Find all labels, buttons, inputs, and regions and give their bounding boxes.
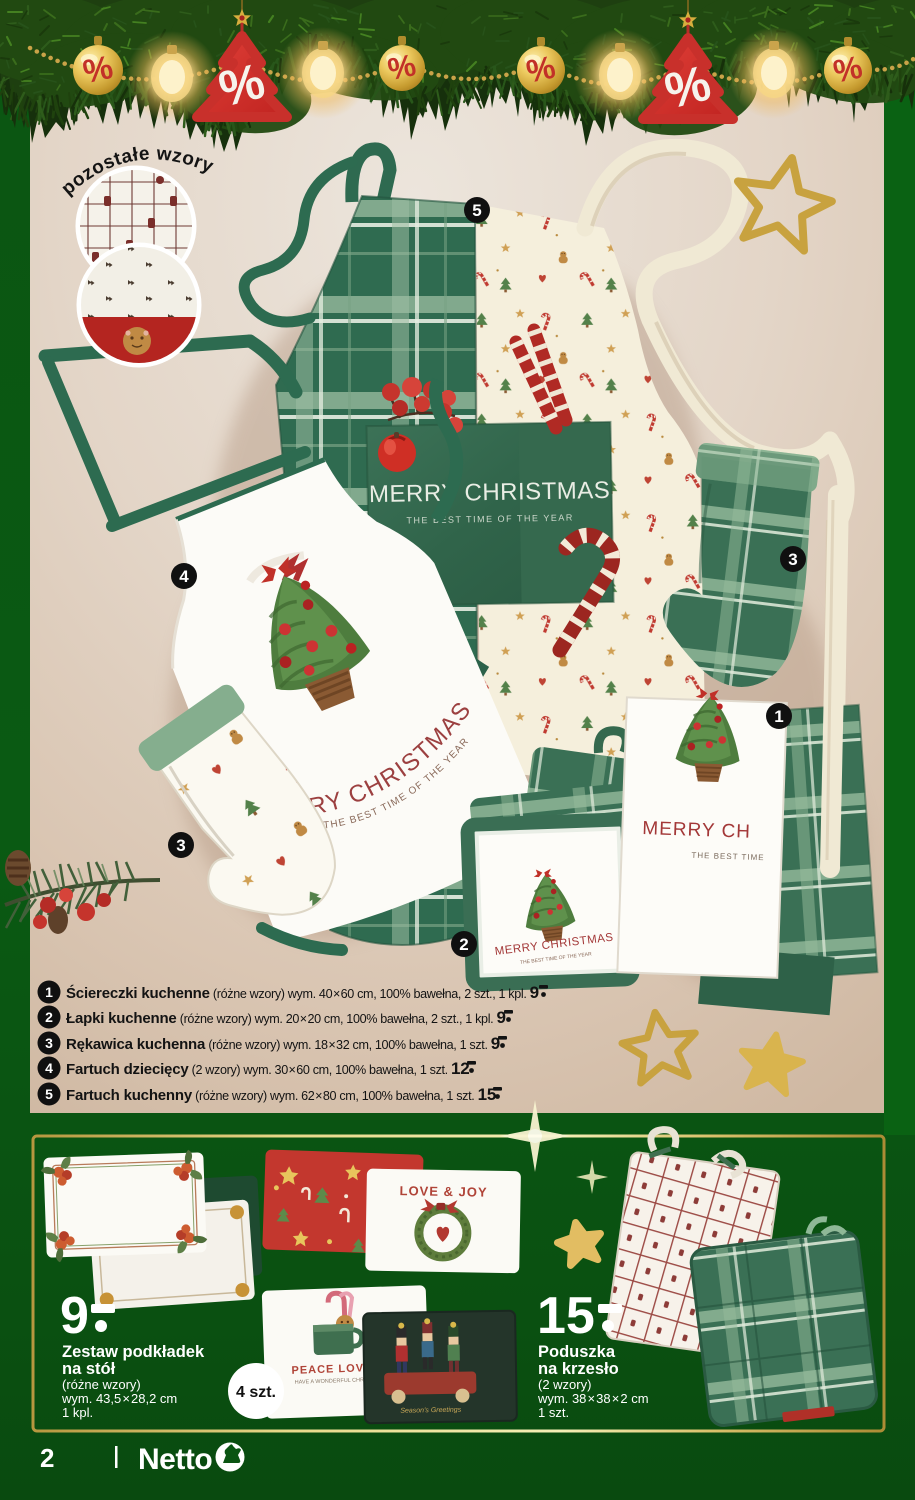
svg-text:Netto: Netto — [138, 1443, 212, 1476]
svg-text:3: 3 — [45, 1035, 53, 1051]
svg-text:3: 3 — [176, 836, 185, 855]
svg-text:1: 1 — [45, 984, 53, 1000]
svg-text:(różne wzory): (różne wzory) — [62, 1377, 141, 1392]
svg-text:wym. 38 × 38 × 2 cm: wym. 38 × 38 × 2 cm — [537, 1391, 649, 1406]
svg-text:2: 2 — [459, 935, 468, 954]
svg-text:4: 4 — [179, 567, 189, 586]
svg-text:5: 5 — [45, 1086, 53, 1102]
svg-text:9: 9 — [60, 1287, 89, 1345]
svg-text:5: 5 — [472, 201, 481, 220]
svg-text:2: 2 — [45, 1009, 53, 1025]
svg-text:2: 2 — [40, 1443, 54, 1473]
svg-text:na krzesło: na krzesło — [538, 1360, 619, 1378]
svg-text:15: 15 — [537, 1287, 595, 1345]
svg-text:4: 4 — [45, 1060, 53, 1076]
svg-text:wym. 43,5 × 28,2 cm: wym. 43,5 × 28,2 cm — [61, 1391, 177, 1406]
svg-text:na stół: na stół — [62, 1360, 116, 1378]
svg-text:Zestaw podkładek: Zestaw podkładek — [62, 1343, 205, 1361]
svg-text:(2 wzory): (2 wzory) — [538, 1377, 591, 1392]
svg-text:3: 3 — [788, 550, 797, 569]
svg-text:4 szt.: 4 szt. — [236, 1384, 276, 1401]
svg-text:Poduszka: Poduszka — [538, 1343, 616, 1361]
svg-text:Season's Greetings: Season's Greetings — [400, 1407, 461, 1415]
svg-text:1 szt.: 1 szt. — [538, 1405, 569, 1420]
svg-text:1 kpl.: 1 kpl. — [62, 1405, 93, 1420]
svg-text:LOVE & JOY: LOVE & JOY — [399, 1183, 487, 1200]
svg-text:MERRY CHRISTMAS: MERRY CHRISTMAS — [369, 477, 611, 508]
svg-text:1: 1 — [774, 707, 783, 726]
svg-text:MERRY CH: MERRY CH — [642, 818, 751, 843]
